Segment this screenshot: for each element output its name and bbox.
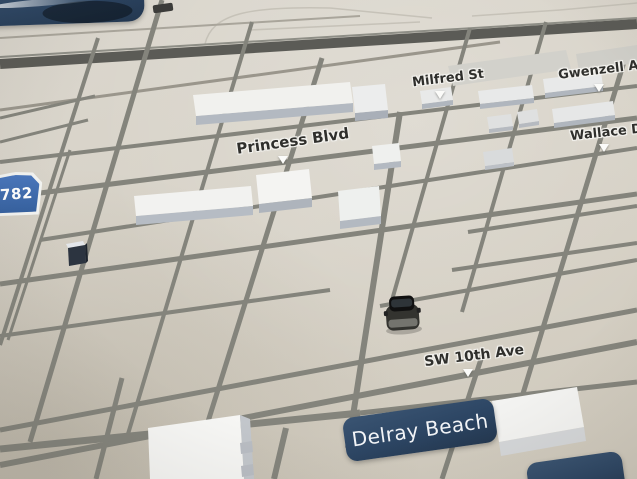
label-pointer-icon [594,84,604,92]
navigation-map-view[interactable]: Princess Blvd Milfred St Gwenzell Ave Wa… [0,0,637,479]
route-shield-number: 782 [0,173,41,214]
traffic-car-dot [153,3,174,14]
map-canvas[interactable] [0,0,637,479]
label-pointer-icon [599,144,609,152]
label-pointer-icon [435,91,445,99]
label-pointer-icon [278,156,288,164]
label-pointer-icon [463,369,473,377]
